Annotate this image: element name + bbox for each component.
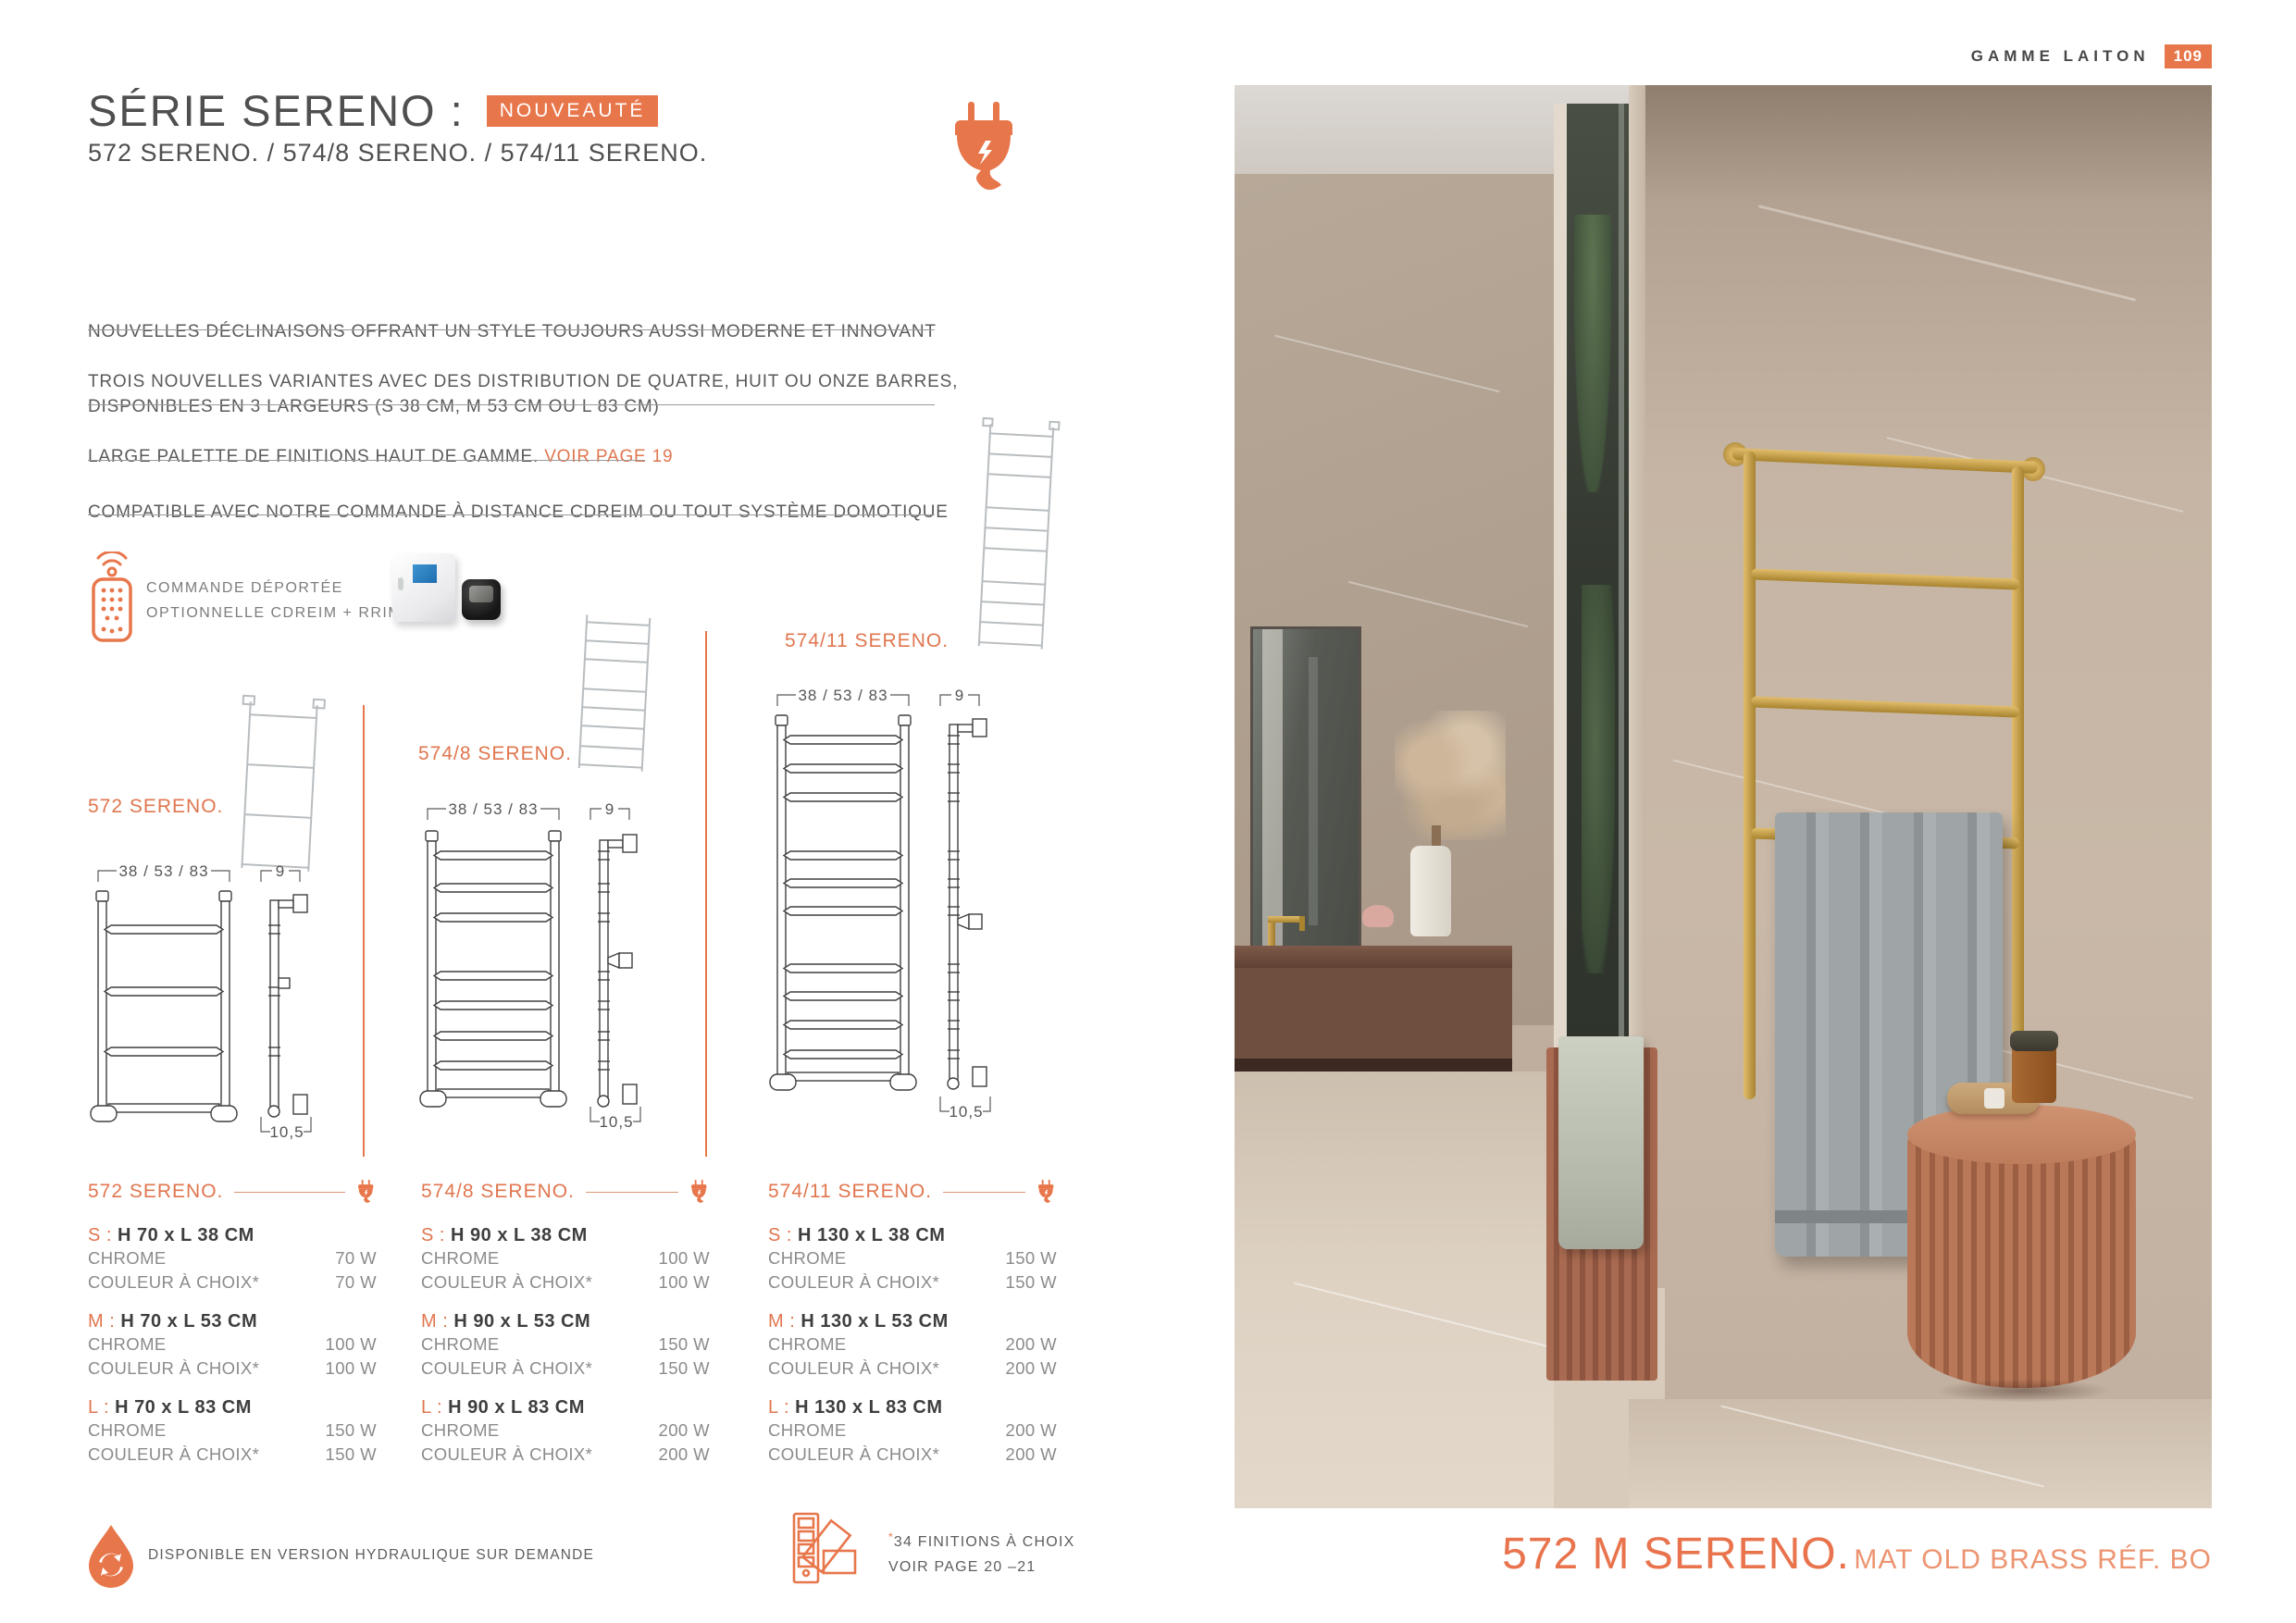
finish-row: COULEUR À CHOIX*200 W [421,1443,710,1467]
knob-top [469,586,493,602]
product-photo-574-8 [567,609,661,778]
finish-row: CHROME200 W [768,1419,1057,1443]
spec-rule [943,1192,1025,1193]
divider [88,329,935,330]
caption-model: 572 M SERENO. [1502,1530,1850,1579]
finish-row: COULEUR À CHOIX*200 W [768,1357,1057,1381]
size-block: S : H 130 x L 38 CM CHROME150 W COULEUR … [768,1225,1057,1295]
svg-text:9: 9 [605,800,614,818]
finish-row: CHROME150 W [88,1419,377,1443]
finish-row: CHROME70 W [88,1246,377,1270]
column-divider [363,705,365,1157]
spec-table-572: 572 SERENO. S : H 70 x L 38 CM CHROME70 … [88,1179,377,1467]
mirror [1250,626,1361,954]
hydraulic-drop-icon [85,1523,137,1588]
feature-1: NOUVELLES DÉCLINAISONS OFFRANT UN STYLE … [88,294,1013,344]
spec-name: 572 SERENO. [88,1181,223,1203]
draped-towel [1558,1036,1644,1249]
product-photo-572 [229,694,330,880]
spec-table-574-11: 574/11 SERENO. S : H 130 x L 38 CM CHROM… [768,1179,1057,1467]
faucet-spout-tip [1299,916,1305,931]
size-title: M : H 130 x L 53 CM [768,1311,1057,1332]
plug-icon [689,1179,710,1205]
new-badge: NOUVEAUTÉ [487,95,659,127]
thermostat-screen [413,564,437,583]
caption-finish: MAT OLD BRASS RÉF. BO [1854,1544,2212,1575]
rung [1751,568,2019,589]
size-title: S : H 70 x L 38 CM [88,1225,377,1246]
finish-row: CHROME200 W [421,1419,710,1443]
floor-right [1629,1399,2212,1508]
hero-title-row: SÉRIE SERENO : NOUVEAUTÉ [88,85,658,136]
spec-header-574-8: 574/8 SERENO. [421,1179,710,1205]
size-block: S : H 90 x L 38 CM CHROME100 W COULEUR À… [421,1225,710,1295]
svg-text:10,5: 10,5 [599,1113,633,1131]
finishes-note-line2[interactable]: VOIR PAGE 20 –21 [888,1555,1074,1580]
drawing-label-574-8: 574/8 SERENO. [418,743,572,765]
amber-jar [2012,1044,2056,1103]
svg-text:38 / 53 / 83: 38 / 53 / 83 [118,862,208,880]
plant-leaves [1574,215,1611,492]
finish-row: COULEUR À CHOIX*150 W [421,1357,710,1381]
finishes-swatch-icon [787,1510,859,1588]
collection-label: GAMME LAITON [1971,47,2150,66]
size-block: M : H 90 x L 53 CM CHROME150 W COULEUR À… [421,1311,710,1381]
spec-name: 574/11 SERENO. [768,1181,932,1203]
terracotta-stool [1907,1105,2136,1410]
svg-text:38 / 53 / 83: 38 / 53 / 83 [448,800,538,818]
catalog-page: GAMME LAITON 109 SÉRIE SERENO : NOUVEAUT… [0,0,2296,1623]
finishes-note: *34 FINITIONS À CHOIX VOIR PAGE 20 –21 [888,1525,1074,1580]
size-title: L : H 130 x L 83 CM [768,1397,1057,1419]
size-title: S : H 130 x L 38 CM [768,1225,1057,1246]
bathroom-photo [1235,85,2212,1508]
svg-text:38 / 53 / 83: 38 / 53 / 83 [798,687,887,704]
plug-icon [356,1179,377,1205]
rung [1751,696,2019,717]
size-block: M : H 130 x L 53 CM CHROME200 W COULEUR … [768,1311,1057,1381]
finish-row: COULEUR À CHOIX*150 W [88,1443,377,1467]
soap-bar [1362,905,1394,927]
feature-3-text: LARGE PALETTE DE FINITIONS HAUT DE GAMME… [88,447,544,466]
mirror-reflection [1309,657,1318,925]
svg-text:9: 9 [276,862,285,880]
divider [88,404,935,405]
feature-4-text: COMPATIBLE AVEC NOTRE COMMANDE À DISTANC… [88,502,949,522]
tech-drawing-572: 38 / 53 / 83 9 10,5 [89,856,331,1145]
plug-icon [1036,1179,1057,1205]
page-subtitle: 572 SERENO. / 574/8 SERENO. / 574/11 SER… [88,139,707,167]
stool-body [1907,1129,2136,1388]
floor-left [1235,1072,1554,1508]
jar-lid [2010,1031,2058,1051]
finish-row: COULEUR À CHOIX*100 W [88,1357,377,1381]
feature-1-text: NOUVELLES DÉCLINAISONS OFFRANT UN STYLE … [88,322,937,341]
size-title: M : H 90 x L 53 CM [421,1311,710,1332]
finish-row: COULEUR À CHOIX*70 W [88,1270,377,1295]
finish-row: CHROME100 W [88,1332,377,1357]
svg-text:10,5: 10,5 [269,1123,304,1141]
vanity-front [1235,968,1512,1064]
plant-leaves [1582,585,1615,973]
feature-3: LARGE PALETTE DE FINITIONS HAUT DE GAMME… [88,419,1023,469]
tech-drawing-574-11: 38 / 53 / 83 9 10,5 [768,680,1011,1134]
finish-row: CHROME100 W [421,1246,710,1270]
photo-caption: 572 M SERENO. MAT OLD BRASS RÉF. BO [1502,1529,2212,1580]
right-tube [2012,466,2024,1099]
page-title: SÉRIE SERENO : [88,85,465,136]
knob-photo [462,579,501,620]
size-title: S : H 90 x L 38 CM [421,1225,710,1246]
size-title: L : H 70 x L 83 CM [88,1397,377,1419]
vanity-shadow [1235,1059,1512,1072]
spec-rule [234,1192,345,1193]
svg-text:9: 9 [955,687,964,704]
size-block: L : H 90 x L 83 CM CHROME200 W COULEUR À… [421,1397,710,1467]
finish-row: CHROME150 W [768,1246,1057,1270]
electric-plug-icon [948,100,1025,196]
spec-header-574-11: 574/11 SERENO. [768,1179,1057,1205]
feature-4: COMPATIBLE AVEC NOTRE COMMANDE À DISTANC… [88,475,1023,525]
drawing-label-574-11: 574/11 SERENO. [785,630,949,652]
finish-row: COULEUR À CHOIX*150 W [768,1270,1057,1295]
remote-caption-line1: COMMANDE DÉPORTÉE [146,576,402,601]
mirror-reflection [1262,629,1283,951]
size-block: L : H 130 x L 83 CM CHROME200 W COULEUR … [768,1397,1057,1467]
feature-2-text: TROIS NOUVELLES VARIANTES AVEC DES DISTR… [88,372,958,416]
size-block: L : H 70 x L 83 CM CHROME150 W COULEUR À… [88,1397,377,1467]
size-block: S : H 70 x L 38 CM CHROME70 W COULEUR À … [88,1225,377,1295]
size-title: M : H 70 x L 53 CM [88,1311,377,1332]
page-header: GAMME LAITON 109 [1971,44,2212,68]
remote-caption-line2: OPTIONNELLE CDREIM + RRIM [146,601,402,626]
finish-row: COULEUR À CHOIX*100 W [421,1270,710,1295]
stool-shadow [1935,1379,2111,1403]
left-tube [1744,452,1756,1099]
spec-name: 574/8 SERENO. [421,1181,575,1203]
vanity-top [1235,946,1512,968]
brush-band [1984,1088,2004,1109]
page-number-badge: 109 [2165,44,2212,68]
vase [1410,846,1451,936]
hydraulic-note: DISPONIBLE EN VERSION HYDRAULIQUE SUR DE… [148,1547,594,1564]
divider [88,460,645,461]
finish-row: CHROME150 W [421,1332,710,1357]
tech-drawing-574-8: 38 / 53 / 83 9 10,5 [418,794,661,1138]
see-page-19-link[interactable]: VOIR PAGE 19 [544,447,673,466]
finishes-note-line1: *34 FINITIONS À CHOIX [888,1525,1074,1555]
brass-towel-warmer [1723,435,2047,1092]
spec-header-572: 572 SERENO. [88,1179,377,1205]
product-photo-574-11 [967,416,1064,657]
divider [88,514,935,515]
column-divider [705,631,707,1157]
finish-row: COULEUR À CHOIX*200 W [768,1443,1057,1467]
spec-table-574-8: 574/8 SERENO. S : H 90 x L 38 CM CHROME1… [421,1179,710,1467]
drawing-label-572: 572 SERENO. [88,796,223,818]
remote-caption: COMMANDE DÉPORTÉE OPTIONNELLE CDREIM + R… [146,576,402,626]
thermostat-button [398,577,403,590]
svg-text:10,5: 10,5 [949,1103,983,1121]
finish-row: CHROME200 W [768,1332,1057,1357]
spec-rule [586,1192,678,1193]
size-block: M : H 70 x L 53 CM CHROME100 W COULEUR À… [88,1311,377,1381]
remote-control-icon [85,551,139,644]
dried-flowers [1395,711,1506,840]
top-bar [1732,448,2038,474]
size-title: L : H 90 x L 83 CM [421,1397,710,1419]
feature-2: TROIS NOUVELLES VARIANTES AVEC DES DISTR… [88,344,1023,419]
thermostat-photo [392,553,455,622]
